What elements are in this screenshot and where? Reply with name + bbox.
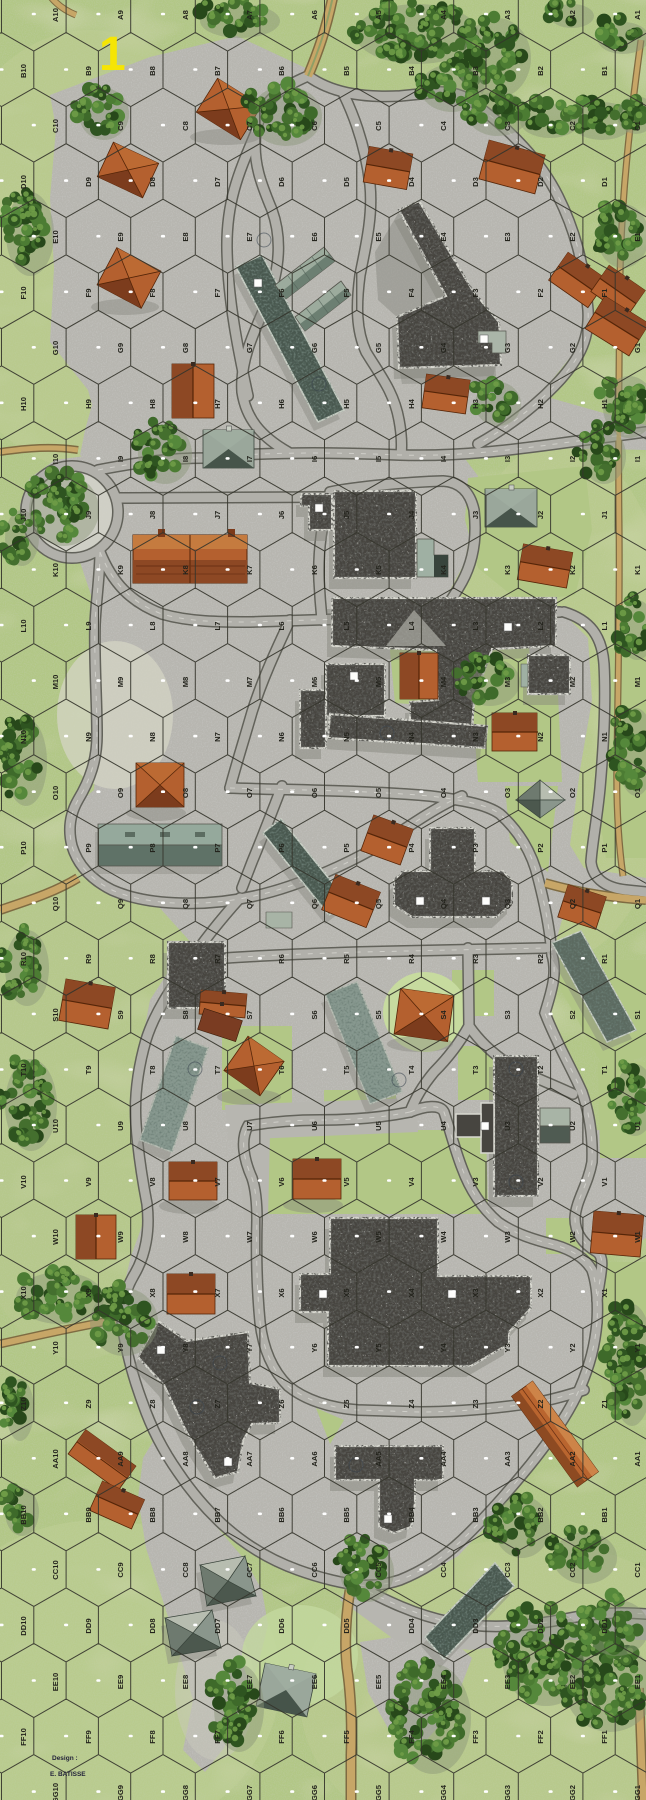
svg-text:DD5: DD5 (342, 1618, 351, 1634)
svg-text:L10: L10 (19, 619, 28, 632)
svg-text:J5: J5 (342, 510, 351, 519)
svg-text:DD3: DD3 (471, 1618, 480, 1633)
svg-text:N2: N2 (536, 732, 545, 742)
svg-text:N3: N3 (471, 732, 480, 742)
svg-text:O1: O1 (633, 787, 642, 798)
svg-text:W7: W7 (245, 1231, 254, 1242)
svg-text:GG7: GG7 (245, 1785, 254, 1800)
svg-text:DD4: DD4 (407, 1618, 416, 1634)
svg-text:R6: R6 (277, 954, 286, 964)
svg-text:FF7: FF7 (213, 1730, 222, 1744)
svg-text:CC4: CC4 (439, 1562, 448, 1578)
svg-text:S4: S4 (439, 1010, 448, 1020)
svg-text:B1: B1 (600, 65, 609, 75)
svg-text:M8: M8 (181, 677, 190, 688)
svg-text:L9: L9 (84, 622, 93, 631)
svg-text:E3: E3 (503, 232, 512, 241)
svg-text:H1: H1 (600, 398, 609, 408)
svg-text:Q7: Q7 (245, 899, 254, 909)
svg-text:A8: A8 (181, 10, 190, 20)
svg-text:W2: W2 (568, 1231, 577, 1242)
svg-text:Z6: Z6 (277, 1400, 286, 1409)
svg-text:M3: M3 (503, 677, 512, 688)
svg-text:D8: D8 (148, 177, 157, 187)
svg-text:G6: G6 (310, 343, 319, 353)
svg-text:T2: T2 (536, 1066, 545, 1075)
svg-text:J8: J8 (148, 511, 157, 519)
svg-text:L4: L4 (407, 621, 416, 631)
svg-text:P3: P3 (471, 843, 480, 852)
svg-text:P2: P2 (536, 843, 545, 852)
svg-text:U3: U3 (503, 1121, 512, 1131)
svg-text:G2: G2 (568, 343, 577, 353)
svg-text:Z10: Z10 (19, 1397, 28, 1410)
svg-text:R8: R8 (148, 954, 157, 964)
svg-text:S10: S10 (51, 1008, 60, 1022)
svg-text:E10: E10 (51, 230, 60, 244)
svg-text:V9: V9 (84, 1177, 93, 1186)
svg-text:T10: T10 (19, 1063, 28, 1076)
svg-text:FF3: FF3 (471, 1730, 480, 1744)
svg-text:B2: B2 (536, 66, 545, 76)
svg-text:BB4: BB4 (407, 1507, 416, 1523)
svg-text:BB6: BB6 (277, 1507, 286, 1522)
svg-text:B4: B4 (407, 65, 416, 75)
svg-text:V2: V2 (536, 1177, 545, 1186)
svg-text:A3: A3 (503, 10, 512, 20)
svg-text:Q6: Q6 (310, 899, 319, 909)
svg-text:V10: V10 (19, 1175, 28, 1189)
svg-text:R2: R2 (536, 954, 545, 964)
svg-text:T1: T1 (600, 1065, 609, 1075)
svg-text:Q10: Q10 (51, 897, 60, 911)
svg-text:CC10: CC10 (51, 1560, 60, 1579)
svg-text:F7: F7 (213, 289, 222, 298)
svg-text:V5: V5 (342, 1177, 351, 1187)
svg-text:F5: F5 (342, 288, 351, 298)
svg-text:AA6: AA6 (310, 1451, 319, 1466)
svg-text:F10: F10 (19, 286, 28, 299)
svg-text:A9: A9 (116, 10, 125, 20)
svg-text:CC9: CC9 (116, 1562, 125, 1577)
svg-text:J6: J6 (277, 511, 286, 519)
svg-text:S9: S9 (116, 1010, 125, 1019)
svg-text:O2: O2 (568, 788, 577, 798)
svg-text:T6: T6 (277, 1066, 286, 1075)
svg-text:Q3: Q3 (503, 899, 512, 909)
svg-text:T3: T3 (471, 1066, 480, 1075)
svg-text:R1: R1 (600, 953, 609, 963)
svg-text:GG4: GG4 (439, 1784, 448, 1800)
svg-text:W6: W6 (310, 1231, 319, 1242)
svg-text:E6: E6 (310, 232, 319, 241)
svg-text:GG8: GG8 (181, 1785, 190, 1800)
svg-text:S7: S7 (245, 1010, 254, 1019)
svg-text:EE2: EE2 (568, 1675, 577, 1689)
svg-text:U2: U2 (568, 1121, 577, 1131)
svg-text:H6: H6 (277, 399, 286, 409)
svg-text:J4: J4 (407, 510, 416, 519)
svg-text:Y6: Y6 (310, 1343, 319, 1352)
svg-text:F4: F4 (407, 288, 416, 298)
svg-text:I5: I5 (374, 455, 383, 462)
svg-text:D7: D7 (213, 177, 222, 187)
svg-text:T5: T5 (342, 1065, 351, 1075)
svg-text:H2: H2 (536, 399, 545, 409)
svg-text:R9: R9 (84, 954, 93, 964)
svg-text:V7: V7 (213, 1177, 222, 1186)
svg-text:Y5: Y5 (374, 1343, 383, 1353)
svg-text:A4: A4 (439, 9, 448, 19)
svg-text:W10: W10 (51, 1229, 60, 1245)
svg-text:EE1: EE1 (633, 1674, 642, 1689)
svg-text:Y9: Y9 (116, 1343, 125, 1352)
svg-text:V1: V1 (600, 1177, 609, 1187)
svg-text:L1: L1 (600, 621, 609, 631)
svg-text:E4: E4 (439, 232, 448, 242)
svg-text:A2: A2 (568, 10, 577, 20)
svg-text:X7: X7 (213, 1288, 222, 1297)
svg-text:K4: K4 (439, 564, 448, 574)
svg-text:Y3: Y3 (503, 1343, 512, 1352)
svg-text:D10: D10 (19, 175, 28, 189)
svg-text:EE4: EE4 (439, 1674, 448, 1689)
svg-text:H7: H7 (213, 399, 222, 409)
svg-text:DD10: DD10 (19, 1616, 28, 1635)
svg-text:Z4: Z4 (407, 1399, 416, 1409)
svg-text:K1: K1 (633, 564, 642, 574)
svg-text:V4: V4 (407, 1177, 416, 1187)
svg-text:P1: P1 (600, 843, 609, 853)
svg-text:W3: W3 (503, 1231, 512, 1242)
svg-text:BB8: BB8 (148, 1507, 157, 1522)
svg-text:F3: F3 (471, 289, 480, 298)
svg-text:T8: T8 (148, 1066, 157, 1075)
svg-text:K7: K7 (245, 565, 254, 575)
svg-text:CC2: CC2 (568, 1562, 577, 1577)
svg-text:X2: X2 (536, 1288, 545, 1297)
svg-text:CC3: CC3 (503, 1562, 512, 1577)
svg-text:Q2: Q2 (568, 899, 577, 909)
svg-text:Q8: Q8 (181, 899, 190, 909)
svg-text:E. BATISSE: E. BATISSE (50, 1771, 86, 1778)
svg-text:Y2: Y2 (568, 1343, 577, 1352)
svg-text:F2: F2 (536, 289, 545, 298)
svg-text:X1: X1 (600, 1288, 609, 1298)
svg-text:DD8: DD8 (148, 1618, 157, 1633)
svg-text:I4: I4 (439, 455, 448, 462)
svg-text:I6: I6 (310, 456, 319, 462)
svg-text:J2: J2 (536, 511, 545, 519)
svg-text:A5: A5 (374, 9, 383, 19)
svg-text:X8: X8 (148, 1288, 157, 1297)
svg-text:AA9: AA9 (116, 1451, 125, 1466)
svg-text:K3: K3 (503, 565, 512, 575)
svg-text:U5: U5 (374, 1120, 383, 1130)
svg-text:F8: F8 (148, 289, 157, 298)
svg-text:AA2: AA2 (568, 1451, 577, 1466)
svg-text:R4: R4 (407, 953, 416, 963)
svg-text:Y10: Y10 (51, 1341, 60, 1355)
svg-text:Z9: Z9 (84, 1400, 93, 1409)
svg-text:K6: K6 (310, 565, 319, 575)
svg-text:B7: B7 (213, 66, 222, 76)
svg-text:E7: E7 (245, 232, 254, 241)
svg-text:X9: X9 (84, 1288, 93, 1297)
svg-text:BB9: BB9 (84, 1507, 93, 1522)
svg-text:L8: L8 (148, 622, 157, 631)
svg-text:I3: I3 (503, 456, 512, 462)
svg-text:V3: V3 (471, 1177, 480, 1186)
svg-text:B6: B6 (277, 66, 286, 76)
svg-text:O5: O5 (374, 787, 383, 798)
svg-text:BB2: BB2 (536, 1507, 545, 1522)
svg-text:H4: H4 (407, 398, 416, 408)
svg-text:L7: L7 (213, 622, 222, 631)
svg-text:M5: M5 (374, 676, 383, 687)
svg-text:M6: M6 (310, 677, 319, 688)
svg-text:CC8: CC8 (181, 1562, 190, 1577)
svg-text:S5: S5 (374, 1010, 383, 1020)
svg-text:GG6: GG6 (310, 1785, 319, 1800)
svg-text:S1: S1 (633, 1010, 642, 1020)
svg-text:Y4: Y4 (439, 1343, 448, 1353)
svg-text:U6: U6 (310, 1121, 319, 1131)
svg-text:I1: I1 (633, 455, 642, 462)
svg-text:C10: C10 (51, 119, 60, 133)
svg-text:A6: A6 (310, 10, 319, 20)
svg-text:J3: J3 (471, 511, 480, 519)
svg-text:W5: W5 (374, 1231, 383, 1243)
svg-text:N10: N10 (19, 730, 28, 744)
svg-text:B10: B10 (19, 64, 28, 78)
svg-text:FF5: FF5 (342, 1729, 351, 1743)
svg-text:E2: E2 (568, 232, 577, 241)
svg-text:BB5: BB5 (342, 1507, 351, 1523)
svg-text:GG9: GG9 (116, 1785, 125, 1800)
svg-text:M2: M2 (568, 677, 577, 688)
svg-text:P8: P8 (148, 843, 157, 852)
svg-text:D9: D9 (84, 177, 93, 187)
svg-text:Q1: Q1 (633, 898, 642, 909)
svg-text:T9: T9 (84, 1066, 93, 1075)
svg-text:C4: C4 (439, 120, 448, 130)
svg-text:BB3: BB3 (471, 1507, 480, 1522)
svg-text:N1: N1 (600, 731, 609, 741)
svg-text:BB1: BB1 (600, 1507, 609, 1523)
svg-text:CC5: CC5 (374, 1562, 383, 1578)
svg-text:H5: H5 (342, 398, 351, 408)
svg-text:J1: J1 (600, 510, 609, 519)
svg-text:R10: R10 (19, 952, 28, 966)
svg-text:C5: C5 (374, 120, 383, 130)
svg-text:FF9: FF9 (84, 1730, 93, 1744)
svg-text:C2: C2 (568, 121, 577, 131)
svg-text:M10: M10 (51, 675, 60, 690)
svg-text:FF4: FF4 (407, 1729, 416, 1743)
svg-text:B5: B5 (342, 65, 351, 75)
svg-text:P5: P5 (342, 843, 351, 853)
svg-text:DD6: DD6 (277, 1618, 286, 1633)
svg-text:FF2: FF2 (536, 1730, 545, 1744)
svg-text:R3: R3 (471, 954, 480, 964)
svg-text:E9: E9 (116, 232, 125, 241)
svg-text:C7: C7 (245, 121, 254, 131)
svg-text:H10: H10 (19, 397, 28, 411)
svg-text:D2: D2 (536, 177, 545, 187)
svg-text:AA10: AA10 (51, 1449, 60, 1468)
svg-text:A10: A10 (51, 8, 60, 22)
svg-text:W4: W4 (439, 1231, 448, 1243)
svg-text:D5: D5 (342, 176, 351, 186)
svg-text:J10: J10 (19, 509, 28, 522)
svg-text:B8: B8 (148, 66, 157, 76)
svg-text:T7: T7 (213, 1066, 222, 1075)
svg-text:D1: D1 (600, 176, 609, 186)
svg-text:P10: P10 (19, 841, 28, 855)
svg-text:N6: N6 (277, 732, 286, 742)
svg-text:BB7: BB7 (213, 1507, 222, 1522)
svg-text:U10: U10 (51, 1119, 60, 1133)
svg-text:GG10: GG10 (51, 1783, 60, 1800)
svg-text:DD1: DD1 (600, 1618, 609, 1634)
svg-text:EE7: EE7 (245, 1675, 254, 1689)
svg-text:H8: H8 (148, 399, 157, 409)
svg-text:W8: W8 (181, 1231, 190, 1242)
svg-text:Z8: Z8 (148, 1400, 157, 1409)
svg-text:L5: L5 (342, 621, 351, 631)
svg-text:J7: J7 (213, 511, 222, 519)
svg-text:E8: E8 (181, 232, 190, 241)
svg-text:S8: S8 (181, 1010, 190, 1019)
svg-text:M9: M9 (116, 677, 125, 688)
svg-text:W9: W9 (116, 1231, 125, 1242)
svg-text:Y1: Y1 (633, 1343, 642, 1353)
svg-text:P7: P7 (213, 843, 222, 852)
svg-text:EE10: EE10 (51, 1673, 60, 1692)
svg-text:I2: I2 (568, 456, 577, 462)
svg-text:EE8: EE8 (181, 1675, 190, 1689)
svg-text:L6: L6 (277, 622, 286, 631)
svg-text:V6: V6 (277, 1177, 286, 1186)
svg-text:K2: K2 (568, 565, 577, 575)
svg-text:DD9: DD9 (84, 1618, 93, 1633)
svg-text:B9: B9 (84, 66, 93, 76)
svg-text:CC1: CC1 (633, 1562, 642, 1578)
svg-text:1: 1 (99, 28, 126, 81)
svg-text:J9: J9 (84, 511, 93, 519)
svg-text:U1: U1 (633, 1120, 642, 1130)
svg-text:B3: B3 (471, 66, 480, 76)
svg-text:M4: M4 (439, 676, 448, 687)
svg-text:G1: G1 (633, 342, 642, 353)
svg-text:N4: N4 (407, 731, 416, 741)
svg-text:X10: X10 (19, 1286, 28, 1300)
svg-text:AA5: AA5 (374, 1451, 383, 1467)
svg-text:O4: O4 (439, 787, 448, 798)
svg-text:CC6: CC6 (310, 1562, 319, 1577)
svg-text:Z2: Z2 (536, 1400, 545, 1409)
svg-text:X6: X6 (277, 1288, 286, 1297)
svg-text:F6: F6 (277, 289, 286, 298)
svg-text:T4: T4 (407, 1065, 416, 1075)
svg-text:E5: E5 (374, 232, 383, 242)
svg-text:K10: K10 (51, 563, 60, 577)
svg-text:R7: R7 (213, 954, 222, 964)
svg-text:N8: N8 (148, 732, 157, 742)
svg-text:L3: L3 (471, 622, 480, 631)
svg-text:CC7: CC7 (245, 1562, 254, 1577)
svg-text:C1: C1 (633, 120, 642, 130)
svg-text:M7: M7 (245, 677, 254, 688)
svg-text:G4: G4 (439, 342, 448, 353)
svg-text:U9: U9 (116, 1121, 125, 1131)
svg-text:S3: S3 (503, 1010, 512, 1019)
svg-text:Q5: Q5 (374, 898, 383, 909)
svg-text:EE5: EE5 (374, 1674, 383, 1689)
svg-text:C9: C9 (116, 121, 125, 131)
svg-text:I8: I8 (181, 456, 190, 462)
svg-text:Q9: Q9 (116, 899, 125, 909)
svg-text:F1: F1 (600, 288, 609, 298)
svg-text:D4: D4 (407, 176, 416, 186)
svg-text:F9: F9 (84, 289, 93, 298)
svg-text:P4: P4 (407, 843, 416, 853)
svg-text:H9: H9 (84, 399, 93, 409)
svg-text:C6: C6 (310, 121, 319, 131)
svg-text:S2: S2 (568, 1010, 577, 1019)
svg-text:DD7: DD7 (213, 1618, 222, 1633)
svg-text:M1: M1 (633, 676, 642, 687)
svg-text:K9: K9 (116, 565, 125, 575)
svg-text:AA7: AA7 (245, 1451, 254, 1466)
svg-text:FF6: FF6 (277, 1730, 286, 1744)
svg-text:FF1: FF1 (600, 1729, 609, 1743)
svg-text:U7: U7 (245, 1121, 254, 1131)
svg-text:P9: P9 (84, 843, 93, 852)
svg-text:H3: H3 (471, 399, 480, 409)
svg-text:Y7: Y7 (245, 1343, 254, 1352)
svg-text:O9: O9 (116, 788, 125, 798)
svg-text:GG5: GG5 (374, 1784, 383, 1800)
svg-text:A1: A1 (633, 9, 642, 19)
svg-text:O10: O10 (51, 786, 60, 800)
svg-text:C3: C3 (503, 121, 512, 131)
svg-text:O3: O3 (503, 788, 512, 798)
svg-text:X3: X3 (471, 1288, 480, 1297)
svg-text:W1: W1 (633, 1231, 642, 1243)
svg-text:O6: O6 (310, 788, 319, 798)
svg-text:Design :: Design : (52, 1755, 78, 1762)
svg-text:AA8: AA8 (181, 1451, 190, 1466)
svg-text:K5: K5 (374, 564, 383, 574)
svg-text:Z7: Z7 (213, 1400, 222, 1409)
svg-text:Z1: Z1 (600, 1399, 609, 1409)
svg-text:G7: G7 (245, 343, 254, 353)
svg-text:G9: G9 (116, 343, 125, 353)
svg-text:P6: P6 (277, 843, 286, 852)
svg-text:GG1: GG1 (633, 1784, 642, 1800)
svg-text:AA3: AA3 (503, 1451, 512, 1466)
svg-text:D3: D3 (471, 177, 480, 187)
svg-text:I9: I9 (116, 456, 125, 462)
svg-text:A7: A7 (245, 10, 254, 20)
svg-text:O8: O8 (181, 788, 190, 798)
svg-text:BB10: BB10 (19, 1505, 28, 1524)
svg-text:E1: E1 (633, 232, 642, 242)
svg-text:S6: S6 (310, 1010, 319, 1019)
svg-text:X4: X4 (407, 1288, 416, 1298)
